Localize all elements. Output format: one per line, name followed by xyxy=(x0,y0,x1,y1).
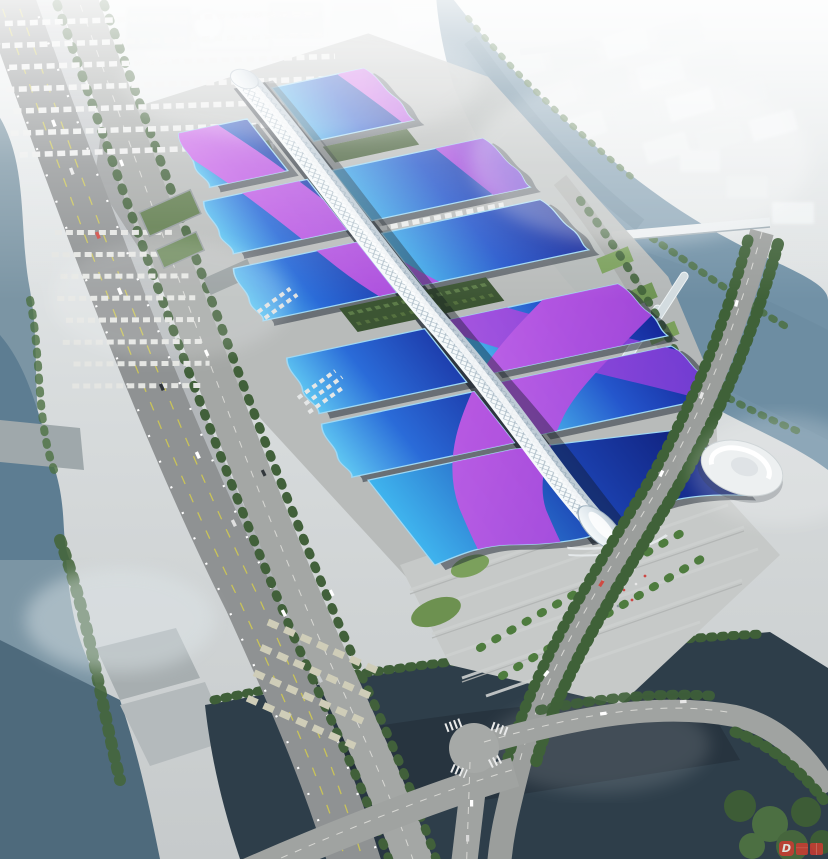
haze-blob xyxy=(470,75,810,245)
haze-blob xyxy=(50,240,290,360)
watermark-logo: D xyxy=(779,841,823,856)
watermark-letter: D xyxy=(779,841,794,856)
haze-blob xyxy=(25,568,215,672)
car xyxy=(680,700,687,704)
haze-blob xyxy=(120,20,480,140)
watermark-glyph xyxy=(810,843,823,855)
car xyxy=(466,835,469,842)
scene-canvas xyxy=(0,0,828,859)
aerial-rendering-exhibition-center: D xyxy=(0,0,828,859)
car xyxy=(470,800,473,807)
watermark-glyph xyxy=(796,843,808,855)
